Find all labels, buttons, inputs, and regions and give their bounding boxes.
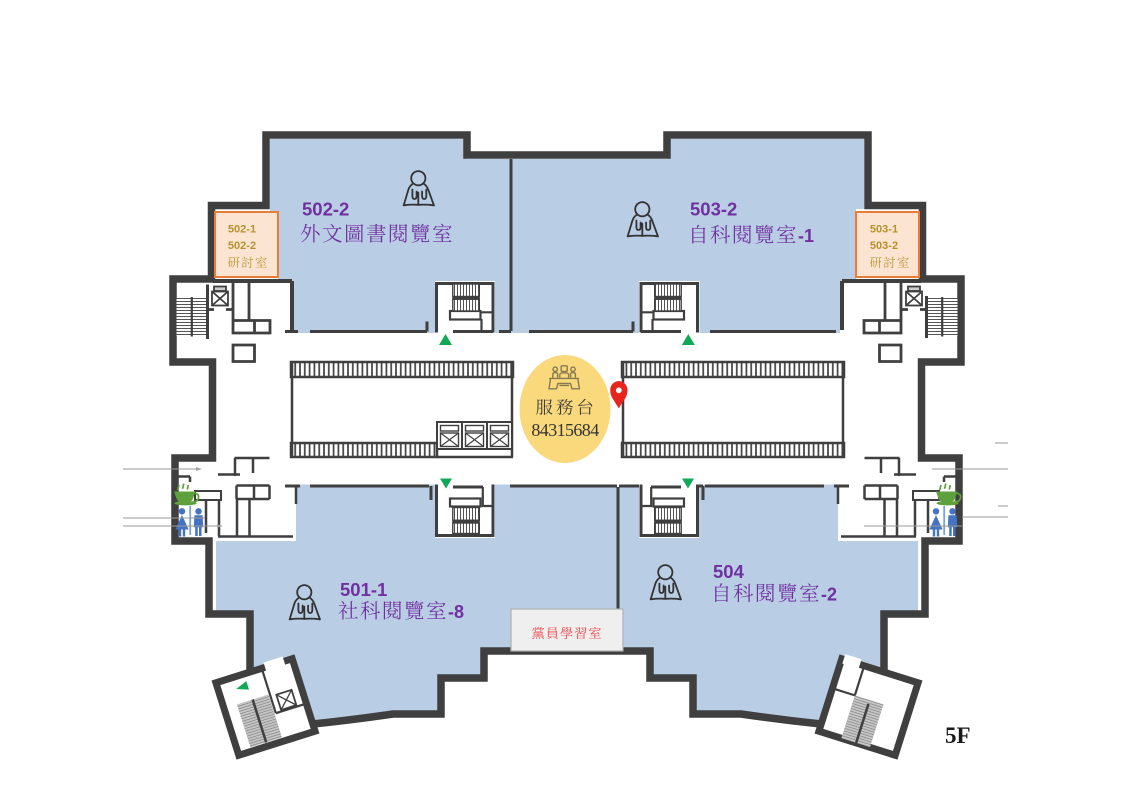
svg-text:-1: -1 (798, 226, 814, 246)
svg-text:503-2: 503-2 (690, 199, 737, 220)
svg-text:502-2: 502-2 (302, 199, 349, 220)
svg-text:-8: -8 (448, 602, 464, 622)
svg-text:502-2: 502-2 (228, 240, 256, 252)
svg-text:502-1: 502-1 (228, 224, 256, 236)
svg-text:503-1: 503-1 (870, 224, 898, 236)
svg-text:504: 504 (713, 561, 745, 582)
svg-text:-2: -2 (821, 585, 837, 605)
svg-text:84315684: 84315684 (531, 420, 599, 440)
svg-text:501-1: 501-1 (340, 579, 387, 600)
svg-text:5F: 5F (945, 723, 971, 748)
svg-text:503-2: 503-2 (870, 240, 898, 252)
